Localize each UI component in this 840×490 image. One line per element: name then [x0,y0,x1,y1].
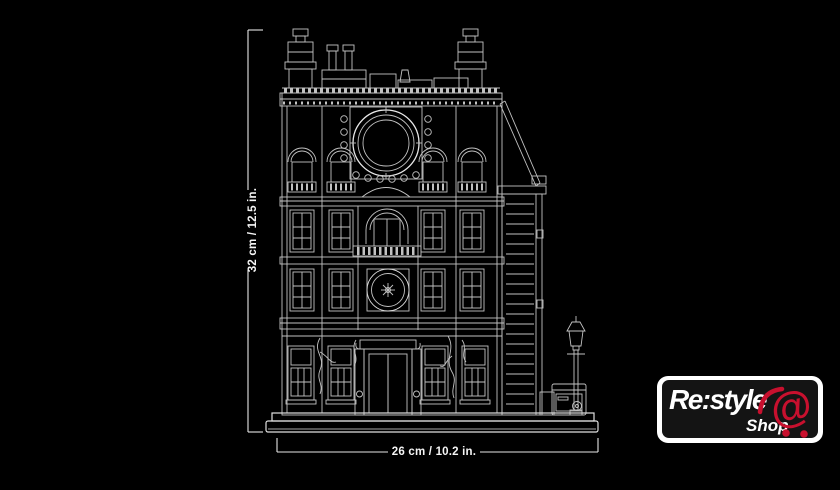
sidewalk-base [266,413,598,432]
building-lines [266,29,598,432]
cart-wheel-right [800,430,808,438]
right-side-wing [498,101,546,415]
ivy-vines [317,336,466,398]
ground-floor-windows [282,336,502,404]
chimney-right [455,29,486,88]
balcony [353,246,421,256]
circular-window [341,107,432,197]
cart-at-icon: @ [755,382,817,438]
cart-wheel-left [782,429,790,437]
height-dimension-label: 32 cm / 12.5 in. [247,188,259,272]
logo-panel: Re:style Shop @ [662,380,818,438]
entrance-door [355,340,421,415]
roof-stacks [322,45,468,88]
width-dimension-label: 26 cm / 10.2 in. [392,446,476,458]
center-arch-window [366,209,408,246]
cart-at-glyph: @ [766,382,815,434]
restyle-shop-logo: Re:style Shop @ [657,376,823,443]
round-seal-window [367,269,409,311]
product-image: 32 cm / 12.5 in. 26 cm / 10.2 in. Re:sty… [0,0,840,490]
chimney-left [285,29,316,88]
utility-box [540,384,586,415]
logo-brand-text: Re:style [669,384,766,416]
roof-parapet [280,88,502,106]
